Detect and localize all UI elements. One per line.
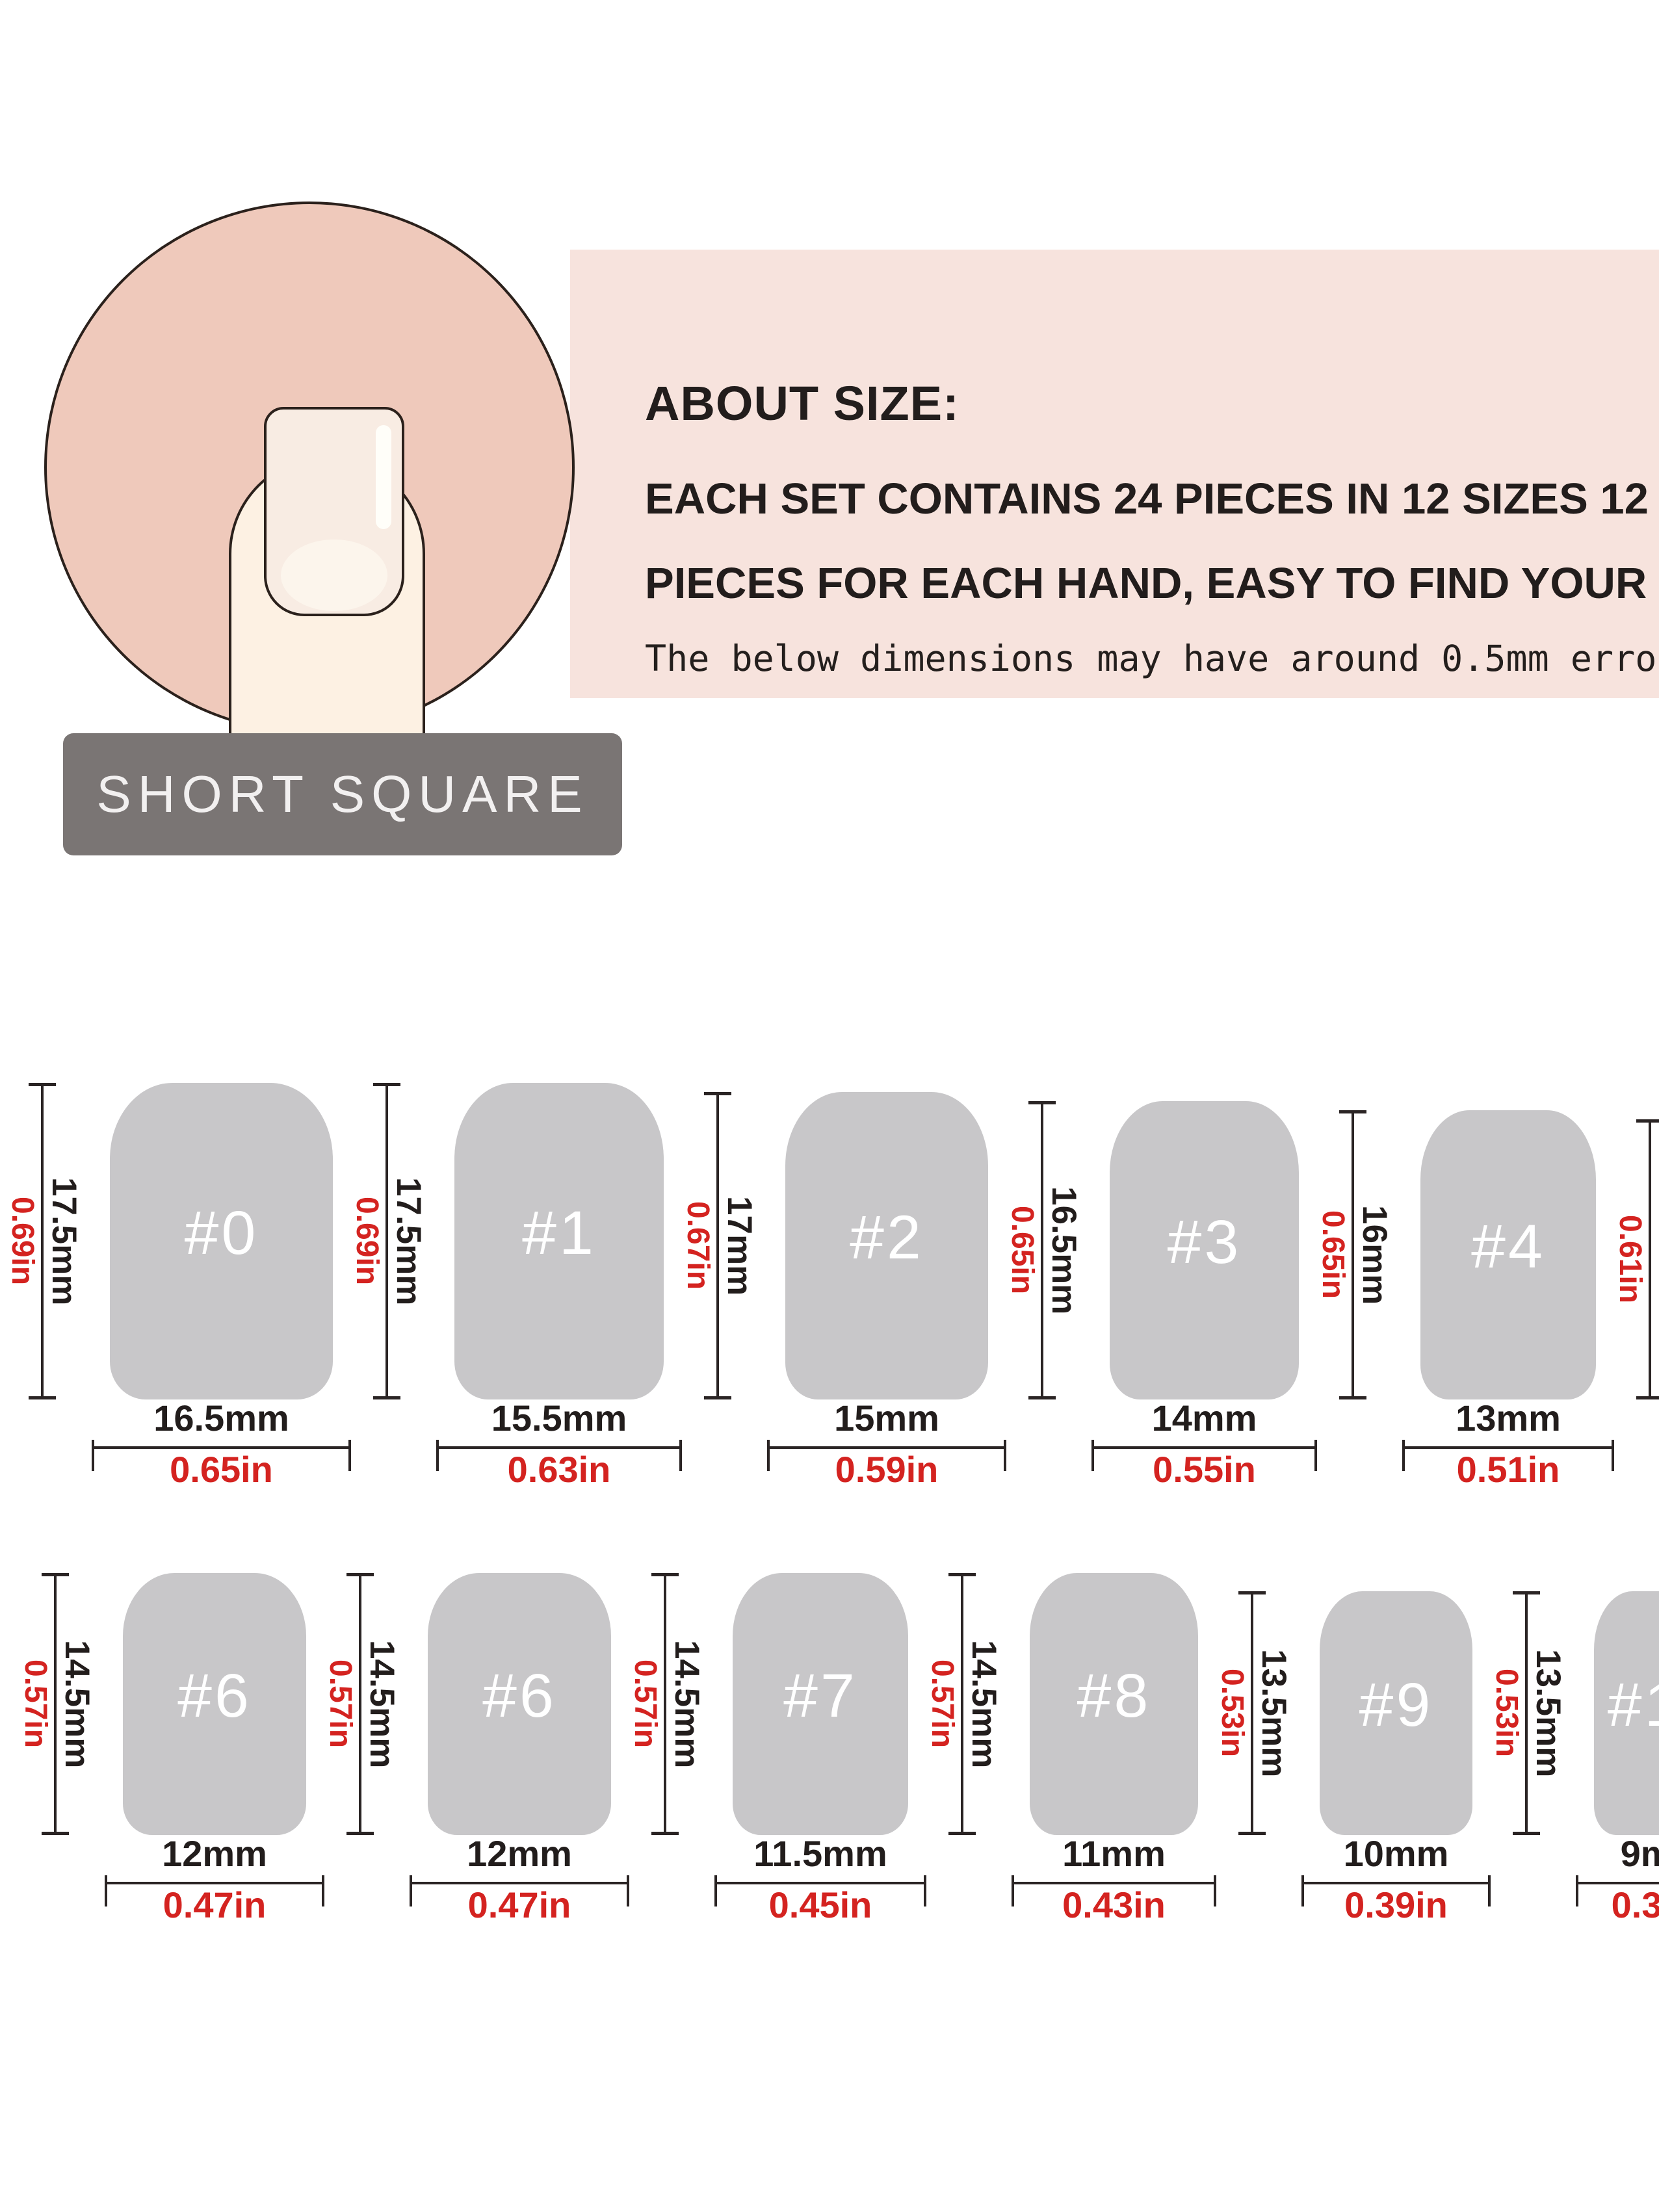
- dimension-error-note: The below dimensions may have around 0.5…: [645, 638, 1659, 679]
- height-mm-label: 17mm: [722, 1196, 757, 1295]
- height-dimension-line: [1649, 1119, 1651, 1399]
- height-mm-label: 13.5mm: [1257, 1649, 1291, 1777]
- height-dimension: 0.69in 17.5mm: [351, 1083, 426, 1399]
- nail-size-number: #10: [1608, 1670, 1659, 1741]
- height-mm-label: 16.5mm: [1047, 1186, 1081, 1314]
- height-inch-label: 0.53in: [1491, 1669, 1522, 1757]
- height-dimension: 0.57in 14.5mm: [20, 1573, 94, 1835]
- width-inch-label: 0.45in: [769, 1886, 872, 1927]
- height-mm-label: 17.5mm: [391, 1177, 426, 1305]
- height-dimension-line: [961, 1573, 963, 1835]
- height-inch-label: 0.65in: [1006, 1206, 1038, 1294]
- height-mm-label: 15.5mm: [1654, 1195, 1659, 1323]
- width-mm-label: 12mm: [162, 1835, 267, 1875]
- width-dimension: 15.5mm 0.63in: [436, 1399, 682, 1492]
- nail-swatch: #6: [123, 1573, 306, 1835]
- height-dimension-line: [664, 1573, 666, 1835]
- width-inch-label: 0.59in: [835, 1450, 939, 1492]
- nail-size-group: 0.57in 14.5mm #6 12mm 0.47in: [20, 1573, 324, 1927]
- width-dimension: 15mm 0.59in: [767, 1399, 1006, 1492]
- width-dimension-line: [1402, 1446, 1614, 1449]
- height-dimension: 0.57in 14.5mm: [926, 1573, 1001, 1835]
- height-dimension-line: [1525, 1591, 1528, 1835]
- height-mm-label: 14.5mm: [365, 1640, 399, 1768]
- nail-size-group: 0.67in 17mm #2 15mm 0.59in: [682, 1092, 1006, 1492]
- width-dimension: 12mm 0.47in: [410, 1835, 629, 1927]
- width-dimension: 11mm 0.43in: [1012, 1835, 1216, 1927]
- width-dimension: 14mm 0.55in: [1091, 1399, 1317, 1492]
- nail-swatch: #7: [733, 1573, 908, 1835]
- height-inch-label: 0.69in: [351, 1197, 382, 1285]
- height-dimension-line: [385, 1083, 388, 1399]
- height-inch-label: 0.69in: [7, 1197, 38, 1285]
- nail-swatch: #2: [785, 1092, 988, 1399]
- width-inch-label: 0.43in: [1062, 1886, 1166, 1927]
- about-size-block: ABOUT SIZE: EACH SET CONTAINS 24 PIECES …: [645, 376, 1659, 679]
- nail-size-group: 0.69in 17.5mm #1 15.5mm 0.63in: [351, 1083, 682, 1492]
- nail-column: #2 15mm 0.59in: [767, 1092, 1006, 1492]
- width-mm-label: 15mm: [834, 1399, 939, 1440]
- nail-size-number: #7: [783, 1661, 857, 1732]
- nail-size-group: 0.61in 15.5mm #5 12.5mm 0.49in: [1614, 1119, 1659, 1492]
- width-mm-label: 14mm: [1152, 1399, 1257, 1440]
- nail-size-number: #6: [177, 1661, 252, 1732]
- width-mm-label: 10mm: [1344, 1835, 1449, 1875]
- width-dimension-line: [1301, 1882, 1491, 1884]
- fingernail-illustration: [264, 407, 404, 616]
- height-dimension-line: [41, 1083, 44, 1399]
- about-title: ABOUT SIZE:: [645, 376, 1659, 431]
- nail-size-group: 0.57in 14.5mm #7 11.5mm 0.45in: [629, 1573, 926, 1927]
- height-dimension: 0.57in 14.5mm: [629, 1573, 704, 1835]
- size-row-top: 0.69in 17.5mm #0 16.5mm 0.65in 0.69in 17…: [0, 1069, 1659, 1492]
- size-row-bottom: 0.57in 14.5mm #6 12mm 0.47in 0.57in 14.5…: [0, 1560, 1659, 1927]
- height-inch-label: 0.57in: [324, 1659, 356, 1748]
- width-dimension-line: [1576, 1882, 1659, 1884]
- nail-column: #3 14mm 0.55in: [1091, 1101, 1317, 1492]
- width-inch-label: 0.47in: [468, 1886, 571, 1927]
- height-dimension: 0.53in 13.5mm: [1216, 1591, 1291, 1835]
- height-mm-label: 13.5mm: [1531, 1649, 1565, 1777]
- nail-size-number: #6: [482, 1661, 556, 1732]
- nail-size-number: #8: [1077, 1661, 1151, 1732]
- about-description-line-1: EACH SET CONTAINS 24 PIECES IN 12 SIZES …: [645, 457, 1659, 541]
- height-mm-label: 14.5mm: [670, 1640, 704, 1768]
- width-dimension: 16.5mm 0.65in: [92, 1399, 351, 1492]
- nail-column: #10 9mm 0.35in: [1576, 1591, 1659, 1927]
- width-dimension: 12mm 0.47in: [105, 1835, 324, 1927]
- nail-column: #6 12mm 0.47in: [105, 1573, 324, 1927]
- width-inch-label: 0.55in: [1153, 1450, 1256, 1492]
- height-dimension: 0.57in 14.5mm: [324, 1573, 399, 1835]
- width-dimension-line: [714, 1882, 926, 1884]
- height-dimension-line: [716, 1092, 719, 1399]
- size-chart-page: SHORT SQUARE ABOUT SIZE: EACH SET CONTAI…: [0, 0, 1659, 2212]
- width-mm-label: 9mm: [1621, 1835, 1659, 1875]
- nail-column: #8 11mm 0.43in: [1012, 1573, 1216, 1927]
- width-inch-label: 0.63in: [508, 1450, 611, 1492]
- height-dimension-line: [1251, 1591, 1253, 1835]
- width-inch-label: 0.47in: [163, 1886, 267, 1927]
- nail-column: #0 16.5mm 0.65in: [92, 1083, 351, 1492]
- width-mm-label: 12mm: [467, 1835, 572, 1875]
- nail-swatch: #8: [1030, 1573, 1198, 1835]
- width-dimension: 10mm 0.39in: [1301, 1835, 1491, 1927]
- height-inch-label: 0.53in: [1216, 1669, 1248, 1757]
- height-inch-label: 0.57in: [629, 1659, 660, 1748]
- width-dimension-line: [105, 1882, 324, 1884]
- width-dimension-line: [436, 1446, 682, 1449]
- height-dimension-line: [1352, 1110, 1354, 1399]
- nail-size-number: #3: [1168, 1207, 1242, 1278]
- nail-swatch: #10: [1594, 1591, 1659, 1835]
- nail-size-group: 0.57in 14.5mm #8 11mm 0.43in: [926, 1573, 1216, 1927]
- width-dimension-line: [1091, 1446, 1317, 1449]
- height-mm-label: 14.5mm: [967, 1640, 1001, 1768]
- nail-size-group: 0.65in 16mm #4 13mm 0.51in: [1317, 1110, 1614, 1492]
- height-inch-label: 0.67in: [682, 1201, 713, 1290]
- height-mm-label: 17.5mm: [47, 1177, 81, 1305]
- shape-name-badge: SHORT SQUARE: [63, 733, 622, 855]
- nail-swatch: #4: [1420, 1110, 1596, 1399]
- width-mm-label: 16.5mm: [153, 1399, 289, 1440]
- height-inch-label: 0.57in: [20, 1659, 51, 1748]
- height-inch-label: 0.57in: [926, 1659, 958, 1748]
- nail-size-number: #0: [185, 1198, 259, 1269]
- nail-column: #4 13mm 0.51in: [1402, 1110, 1614, 1492]
- nail-size-group: 0.53in 13.5mm #9 10mm 0.39in: [1216, 1591, 1491, 1927]
- width-inch-label: 0.65in: [170, 1450, 273, 1492]
- nail-size-number: #2: [850, 1203, 924, 1273]
- nail-column: #9 10mm 0.39in: [1301, 1591, 1491, 1927]
- height-dimension-line: [359, 1573, 361, 1835]
- width-inch-label: 0.39in: [1344, 1886, 1448, 1927]
- height-dimension: 0.65in 16mm: [1317, 1110, 1392, 1399]
- width-dimension-line: [767, 1446, 1006, 1449]
- nail-column: #7 11.5mm 0.45in: [714, 1573, 926, 1927]
- width-dimension-line: [92, 1446, 351, 1449]
- height-inch-label: 0.61in: [1614, 1215, 1645, 1303]
- width-dimension-line: [410, 1882, 629, 1884]
- height-mm-label: 16mm: [1357, 1205, 1392, 1305]
- height-dimension: 0.67in 17mm: [682, 1092, 757, 1399]
- width-mm-label: 11mm: [1062, 1835, 1166, 1875]
- height-dimension-line: [1041, 1101, 1043, 1399]
- nail-size-number: #1: [522, 1198, 596, 1269]
- height-dimension: 0.65in 16.5mm: [1006, 1101, 1081, 1399]
- nail-swatch: #0: [110, 1083, 333, 1399]
- nail-size-group: 0.53in 13.5mm #10 9mm 0.35in: [1491, 1591, 1659, 1927]
- width-mm-label: 15.5mm: [491, 1399, 627, 1440]
- width-dimension: 13mm 0.51in: [1402, 1399, 1614, 1492]
- nail-column: #6 12mm 0.47in: [410, 1573, 629, 1927]
- width-dimension-line: [1012, 1882, 1216, 1884]
- about-description-line-2: PIECES FOR EACH HAND, EASY TO FIND YOUR …: [645, 541, 1659, 626]
- nail-size-number: #9: [1359, 1670, 1433, 1741]
- width-inch-label: 0.35in: [1612, 1886, 1659, 1927]
- width-inch-label: 0.51in: [1457, 1450, 1560, 1492]
- height-dimension: 0.61in 15.5mm: [1614, 1119, 1659, 1399]
- height-dimension-line: [54, 1573, 57, 1835]
- nail-size-number: #4: [1471, 1212, 1545, 1282]
- nail-column: #1 15.5mm 0.63in: [436, 1083, 682, 1492]
- width-mm-label: 13mm: [1456, 1399, 1561, 1440]
- height-dimension: 0.53in 13.5mm: [1491, 1591, 1565, 1835]
- width-mm-label: 11.5mm: [753, 1835, 887, 1875]
- nail-size-group: 0.69in 17.5mm #0 16.5mm 0.65in: [7, 1083, 351, 1492]
- height-inch-label: 0.65in: [1317, 1210, 1348, 1299]
- shape-name-label: SHORT SQUARE: [96, 764, 588, 824]
- nail-swatch: #6: [428, 1573, 611, 1835]
- width-dimension: 11.5mm 0.45in: [714, 1835, 926, 1927]
- nail-size-group: 0.57in 14.5mm #6 12mm 0.47in: [324, 1573, 629, 1927]
- nail-swatch: #3: [1110, 1101, 1299, 1399]
- nail-swatch: #9: [1320, 1591, 1472, 1835]
- height-mm-label: 14.5mm: [60, 1640, 94, 1768]
- nail-swatch: #1: [454, 1083, 664, 1399]
- width-dimension: 9mm 0.35in: [1576, 1835, 1659, 1927]
- nail-size-group: 0.65in 16.5mm #3 14mm 0.55in: [1006, 1101, 1317, 1492]
- height-dimension: 0.69in 17.5mm: [7, 1083, 81, 1399]
